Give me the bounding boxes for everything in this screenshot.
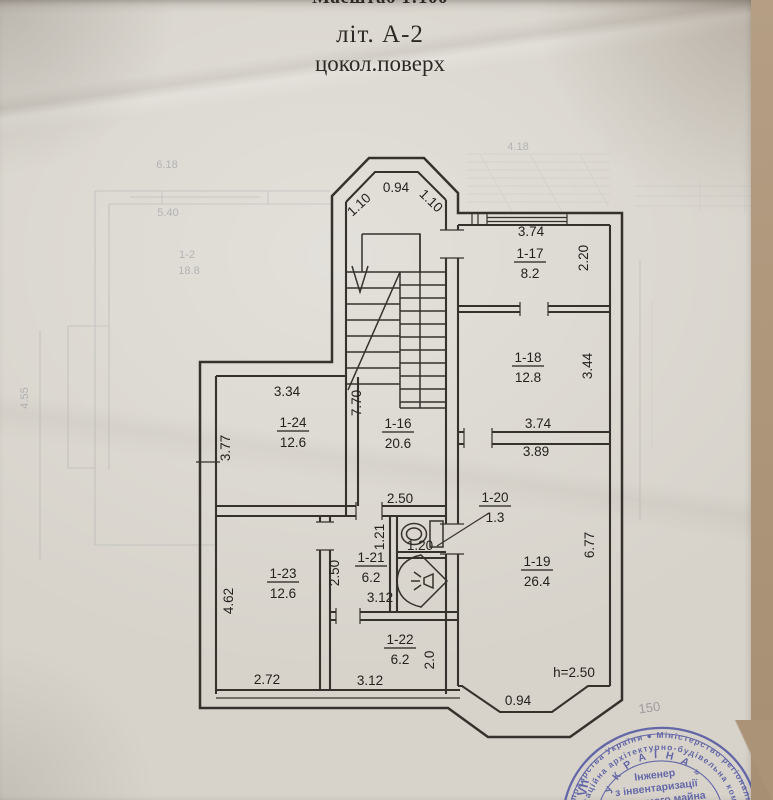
room-area: 12.6 [280, 435, 306, 450]
dimension-label: 3.74 [525, 416, 552, 431]
ghost-label: 4.55 [19, 387, 31, 408]
dimension-label: 2.50 [327, 560, 342, 586]
dimension-label: h=2.50 [553, 665, 595, 680]
room-number: 1-20 [481, 490, 508, 505]
shower-head-glyph [411, 572, 433, 590]
dimension-label: 0.94 [383, 180, 410, 195]
dimension-label: 7.70 [349, 390, 364, 416]
room-area: 6.2 [391, 652, 410, 667]
dimension-label: 4.62 [221, 588, 236, 614]
room-area: 20.6 [385, 436, 411, 451]
ghost-label: 4.18 [507, 141, 528, 153]
plan-line [400, 272, 446, 408]
plan-line [348, 272, 400, 390]
room-number: 1-22 [386, 632, 413, 647]
room-area: 1.3 [486, 510, 505, 525]
pencil-note: 150 [638, 699, 662, 717]
plan-line [400, 234, 420, 408]
stamp-side-mark: Vh [574, 778, 592, 797]
dimension-label: 2.72 [254, 672, 280, 687]
room-number: 1-16 [384, 416, 411, 431]
dimension-label: 3.74 [518, 224, 545, 239]
desk-background [751, 0, 773, 800]
plan-line [362, 234, 420, 272]
ghost-label: 5.40 [157, 207, 178, 219]
plan-line [468, 154, 762, 450]
plan-line [320, 516, 330, 690]
dimension-label: 0.94 [505, 693, 532, 708]
room-number: 1-17 [516, 246, 543, 261]
room-number: 1-21 [357, 550, 384, 565]
plan-line [216, 506, 446, 516]
bathroom-fixtures [397, 513, 489, 607]
door-jamb-ticks [316, 230, 548, 624]
staircase [346, 234, 446, 408]
ghost-label: 6.18 [156, 159, 177, 171]
room-area: 6.2 [362, 570, 381, 585]
window-symbol [487, 218, 567, 222]
plan-line [330, 612, 458, 620]
plan-line [458, 432, 610, 444]
room-1-20-leader-line [437, 513, 489, 546]
floor-plan-drawing: 6.185.401-218.84.554.18 [0, 0, 773, 800]
ghost-label: 18.8 [178, 265, 199, 277]
room-area: 12.8 [515, 370, 541, 385]
dimension-label: 1.21 [372, 524, 387, 550]
dimension-label: 1.10 [416, 186, 445, 215]
dimension-label: 6.77 [582, 532, 597, 558]
dimension-label: 3.12 [357, 673, 383, 688]
photo-of-floor-plan-document: Масштаб 1:100 літ. А-2 цокол.поверх 6.18… [0, 0, 773, 800]
room-number: 1-23 [269, 566, 296, 581]
room-number: 1-24 [279, 415, 307, 430]
plan-line [196, 213, 567, 462]
dimension-label: 3.44 [580, 352, 595, 379]
dimension-label: 2.20 [576, 245, 591, 271]
room-area: 8.2 [521, 266, 540, 281]
dimension-label: 3.89 [523, 444, 549, 459]
plan-line [458, 686, 610, 712]
room-number: 1-18 [514, 350, 541, 365]
ghost-label: 1-2 [179, 249, 195, 261]
dimension-label: 3.34 [274, 384, 301, 399]
shower-icon [397, 555, 447, 607]
dimension-label: 2.50 [387, 491, 413, 506]
dimension-label: 3.12 [367, 590, 393, 605]
dimension-label: 3.77 [218, 435, 233, 461]
room-area: 12.6 [270, 586, 296, 601]
paper-corner-gap [713, 720, 773, 800]
dimension-label: 2.0 [422, 651, 437, 670]
room-area: 26.4 [524, 574, 551, 589]
dimension-label: 1.10 [344, 190, 373, 219]
room-number: 1-19 [523, 554, 550, 569]
plan-line [458, 306, 610, 312]
paper-sheet: Масштаб 1:100 літ. А-2 цокол.поверх 6.18… [0, 0, 756, 800]
dimension-label: 1.20 [407, 538, 433, 553]
